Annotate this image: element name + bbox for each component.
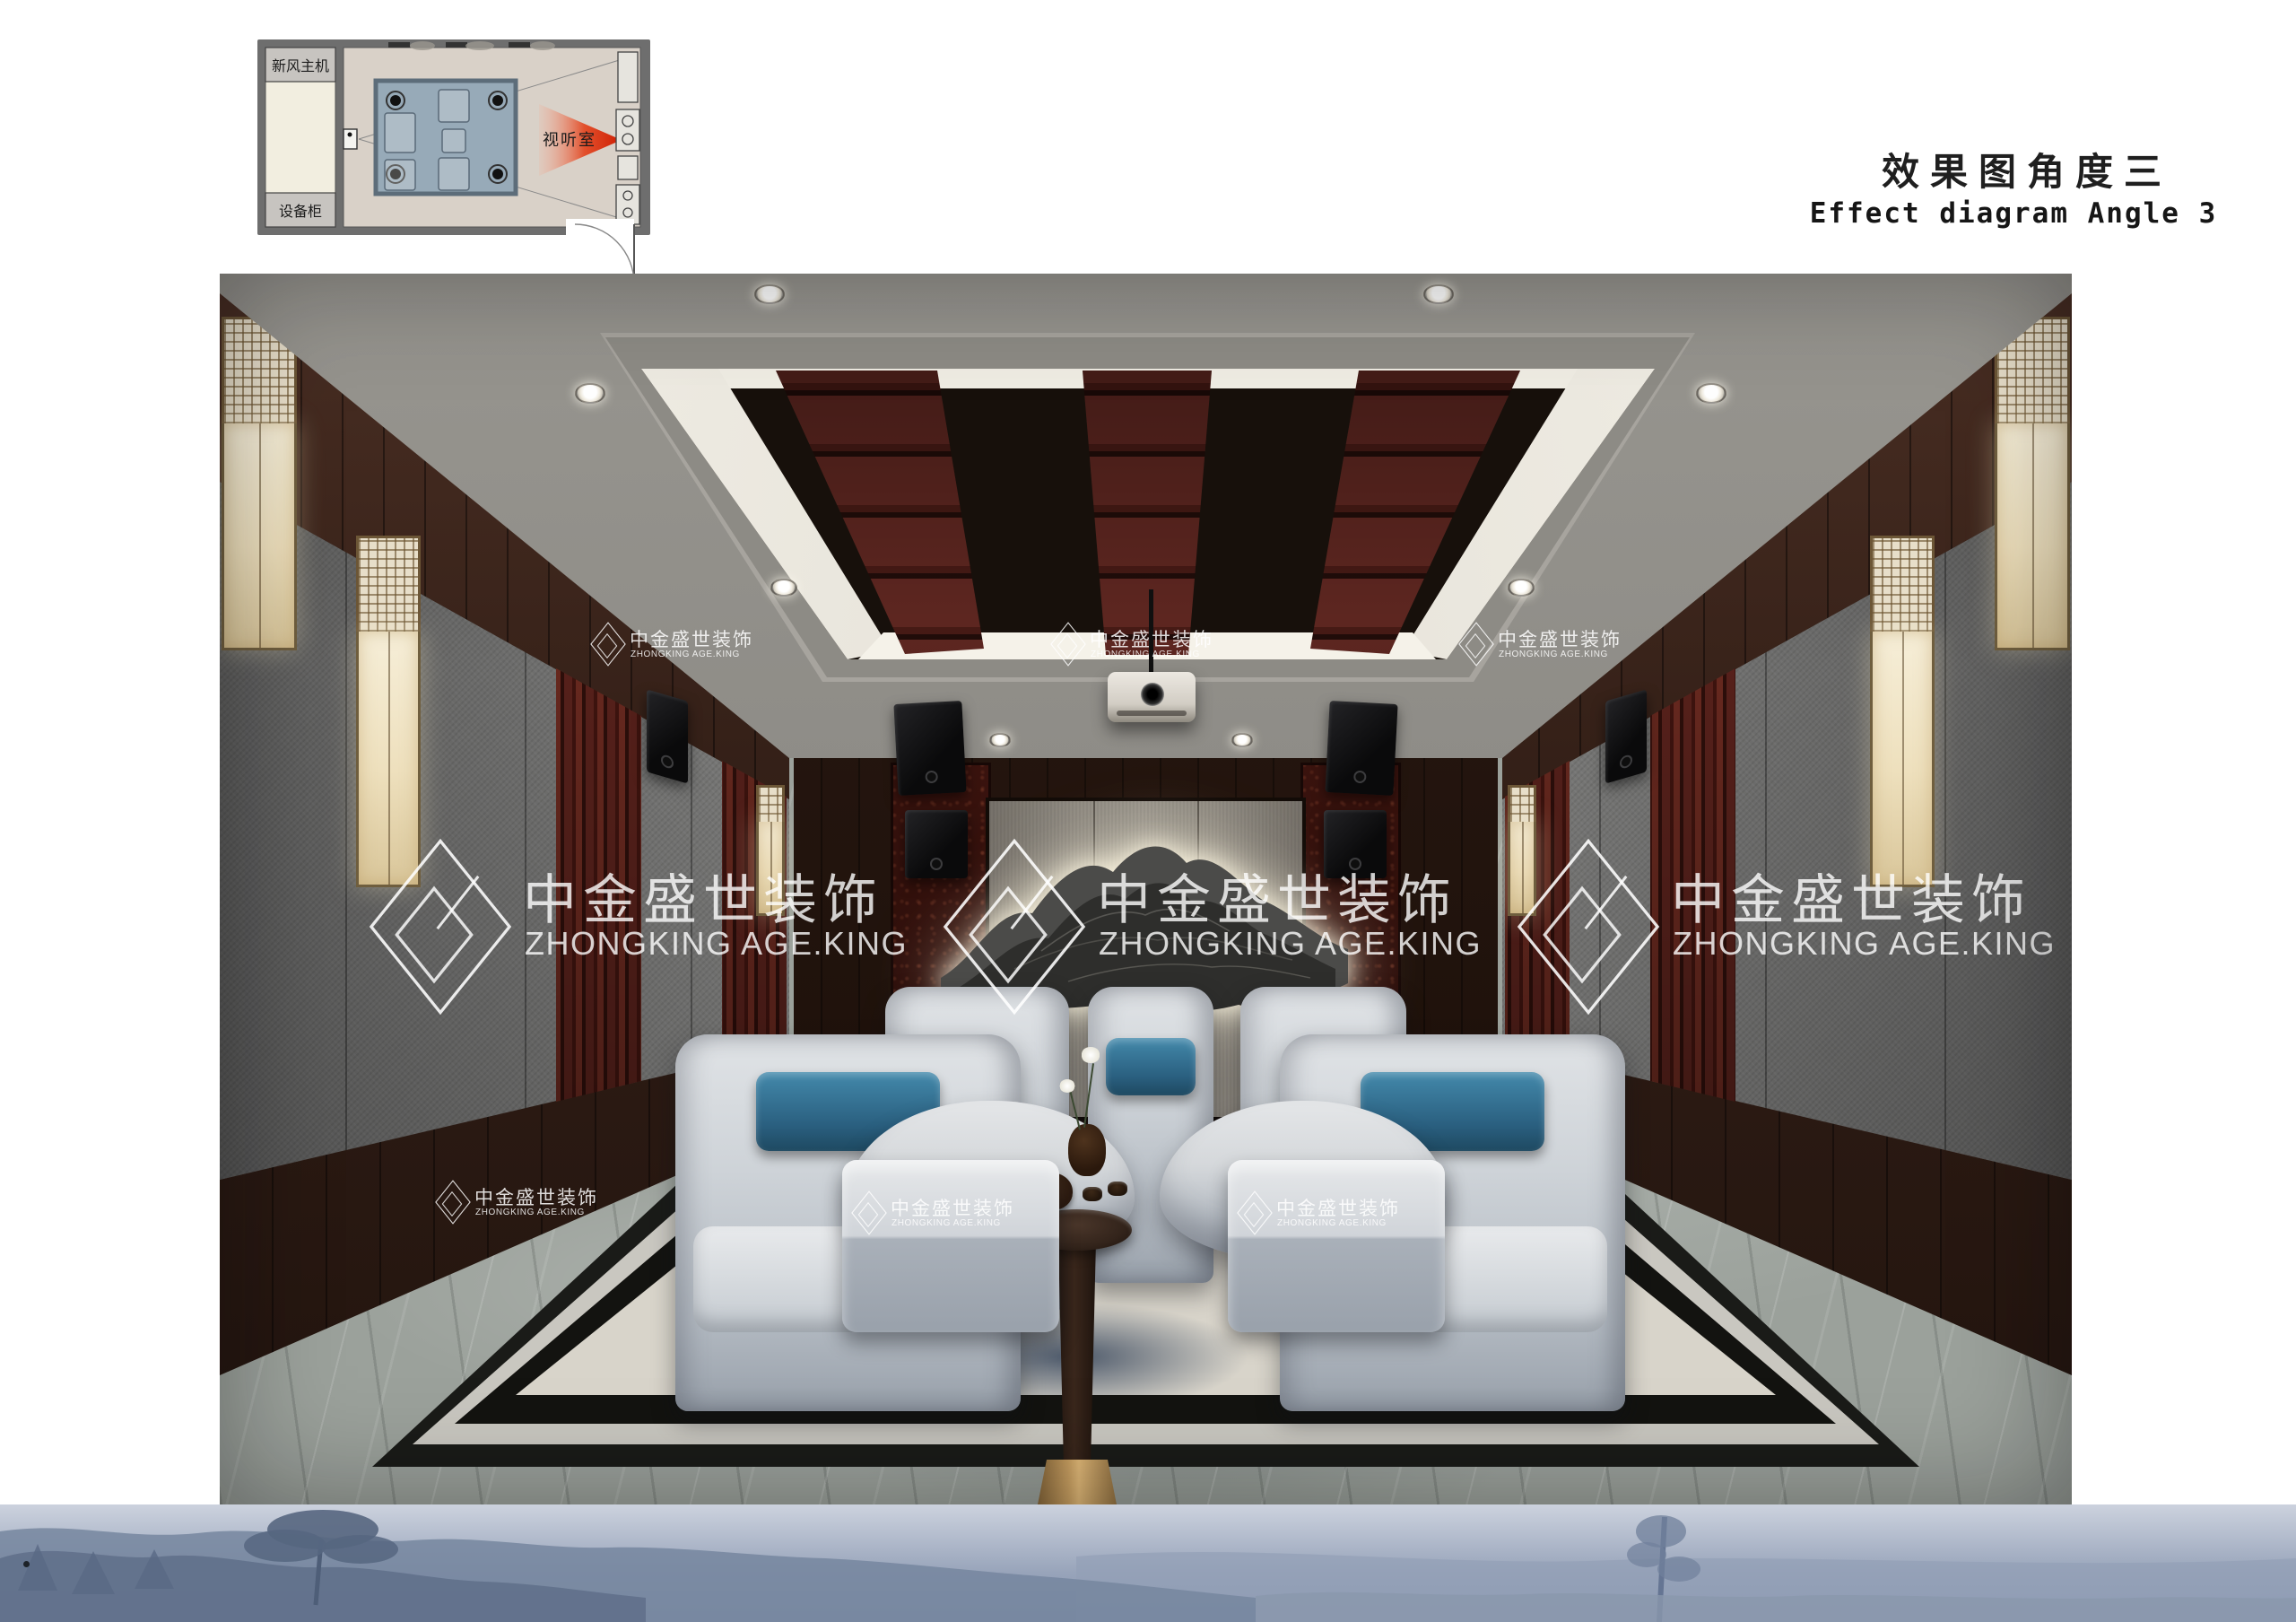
- downlight: [575, 383, 605, 404]
- floorplan-label-box-equipment: 设备柜: [265, 193, 335, 227]
- brand-diamond-logo-icon: [592, 624, 622, 665]
- label-av-room: 视听室: [543, 131, 596, 150]
- wall-lantern-sconce: [356, 536, 421, 887]
- brand-diamond-logo-icon: [853, 1192, 883, 1234]
- floorplan-label-box-fresh-air: 新风主机: [265, 48, 335, 82]
- floorplan-seating-platform: [376, 81, 516, 194]
- presentation-page: 新风主机 设备柜 视听: [0, 0, 2296, 1622]
- downlight: [754, 284, 785, 304]
- wall-lantern-sconce: [1870, 536, 1935, 887]
- flower-bloom: [1059, 1079, 1075, 1093]
- watermark-brand-cn: 中金盛世装饰: [630, 625, 753, 652]
- downlight: [1696, 383, 1726, 404]
- left-wall-speaker: [647, 689, 688, 783]
- watermark-brand-en: ZHONGKING AGE.KING: [525, 925, 908, 963]
- tea-cup: [1108, 1182, 1127, 1196]
- watermark-small: 中金盛世装饰 ZHONGKING AGE.KING: [1460, 622, 1613, 672]
- downlight: [1423, 284, 1454, 304]
- watermark-brand-en: ZHONGKING AGE.KING: [1499, 650, 1608, 659]
- watermark-brand-cn: 中金盛世装饰: [523, 857, 883, 935]
- watermark-large-right: 中金盛世装饰 ZHONGKING AGE.KING: [1518, 837, 1949, 1030]
- flower-vase: [1068, 1124, 1106, 1176]
- watermark-brand-cn: 中金盛世装饰: [1276, 1194, 1400, 1221]
- label-fresh-air-unit: 新风主机: [272, 57, 329, 74]
- watermark-small: 中金盛世装饰 ZHONGKING AGE.KING: [437, 1180, 589, 1230]
- watermark-brand-cn: 中金盛世装饰: [891, 1194, 1014, 1221]
- brand-diamond-logo-icon: [1239, 1192, 1269, 1234]
- floorplan-projector-symbol: [344, 129, 357, 149]
- right-wall-speaker: [1605, 689, 1647, 783]
- wall-lantern-sconce: [222, 317, 297, 650]
- footer-landscape-art: [0, 1504, 2296, 1622]
- brand-diamond-logo-icon: [1518, 837, 1653, 1016]
- watermark-brand-en: ZHONGKING AGE.KING: [631, 650, 740, 659]
- projector-lens: [1141, 683, 1164, 706]
- projector: [1108, 672, 1196, 722]
- projector-vent: [1117, 711, 1187, 716]
- flower-bloom: [1081, 1047, 1100, 1063]
- tea-cup: [1083, 1187, 1102, 1201]
- brand-diamond-logo-icon: [1460, 624, 1491, 665]
- brand-diamond-logo-icon: [1052, 624, 1083, 665]
- watermark-brand-en: ZHONGKING AGE.KING: [1091, 650, 1200, 659]
- floorplan-diagram: 新风主机 设备柜 视听: [254, 34, 654, 285]
- downlight: [770, 579, 797, 597]
- watermark-large-left: 中金盛世装饰 ZHONGKING AGE.KING: [370, 837, 801, 1030]
- watermark-brand-cn: 中金盛世装饰: [1498, 625, 1622, 652]
- wall-lantern-sconce: [1995, 317, 2070, 650]
- square-ottoman-left: [842, 1160, 1059, 1332]
- brand-diamond-logo-icon: [437, 1182, 467, 1223]
- watermark-brand-en: ZHONGKING AGE.KING: [1277, 1218, 1387, 1228]
- interior-rendering: 中金盛世装饰 ZHONGKING AGE.KING 中金盛世装饰 ZHONGKI…: [220, 274, 2072, 1504]
- front-speaker-upper-right: [1325, 701, 1397, 796]
- stray-mark: [23, 1561, 30, 1567]
- wall-seam: [345, 550, 347, 1150]
- downlight: [989, 733, 1011, 747]
- watermark-brand-en: ZHONGKING AGE.KING: [1099, 925, 1482, 963]
- watermark-small: 中金盛世装饰 ZHONGKING AGE.KING: [1052, 622, 1205, 672]
- watermark-brand-en: ZHONGKING AGE.KING: [475, 1208, 585, 1217]
- side-table-brass-base: [1034, 1460, 1120, 1504]
- lumbar-pillow-center: [1106, 1038, 1196, 1095]
- square-ottoman-right: [1228, 1160, 1445, 1332]
- floorplan-equipment-rack: [616, 52, 639, 224]
- watermark-brand-en: ZHONGKING AGE.KING: [891, 1218, 1001, 1228]
- footer-landscape-strip: [0, 1504, 2296, 1622]
- front-speaker-upper-left: [893, 701, 966, 796]
- page-title-english: Effect diagram Angle 3: [1785, 197, 2242, 230]
- downlight: [1508, 579, 1535, 597]
- watermark-brand-cn: 中金盛世装饰: [1090, 625, 1213, 652]
- watermark-small: 中金盛世装饰 ZHONGKING AGE.KING: [853, 1190, 1005, 1241]
- label-equipment-cabinet: 设备柜: [279, 203, 322, 220]
- watermark-brand-cn: 中金盛世装饰: [1097, 857, 1457, 935]
- page-title-chinese: 效果图角度三: [1857, 142, 2197, 196]
- watermark-brand-cn: 中金盛世装饰: [474, 1183, 598, 1210]
- downlight: [1231, 733, 1253, 747]
- brand-diamond-logo-icon: [944, 837, 1079, 1016]
- watermark-small: 中金盛世装饰 ZHONGKING AGE.KING: [1239, 1190, 1391, 1241]
- watermark-brand-en: ZHONGKING AGE.KING: [1673, 925, 2056, 963]
- watermark-brand-cn: 中金盛世装饰: [1671, 857, 2031, 935]
- watermark-large-center: 中金盛世装饰 ZHONGKING AGE.KING: [944, 837, 1375, 1030]
- brand-diamond-logo-icon: [370, 837, 505, 1016]
- watermark-small: 中金盛世装饰 ZHONGKING AGE.KING: [592, 622, 744, 672]
